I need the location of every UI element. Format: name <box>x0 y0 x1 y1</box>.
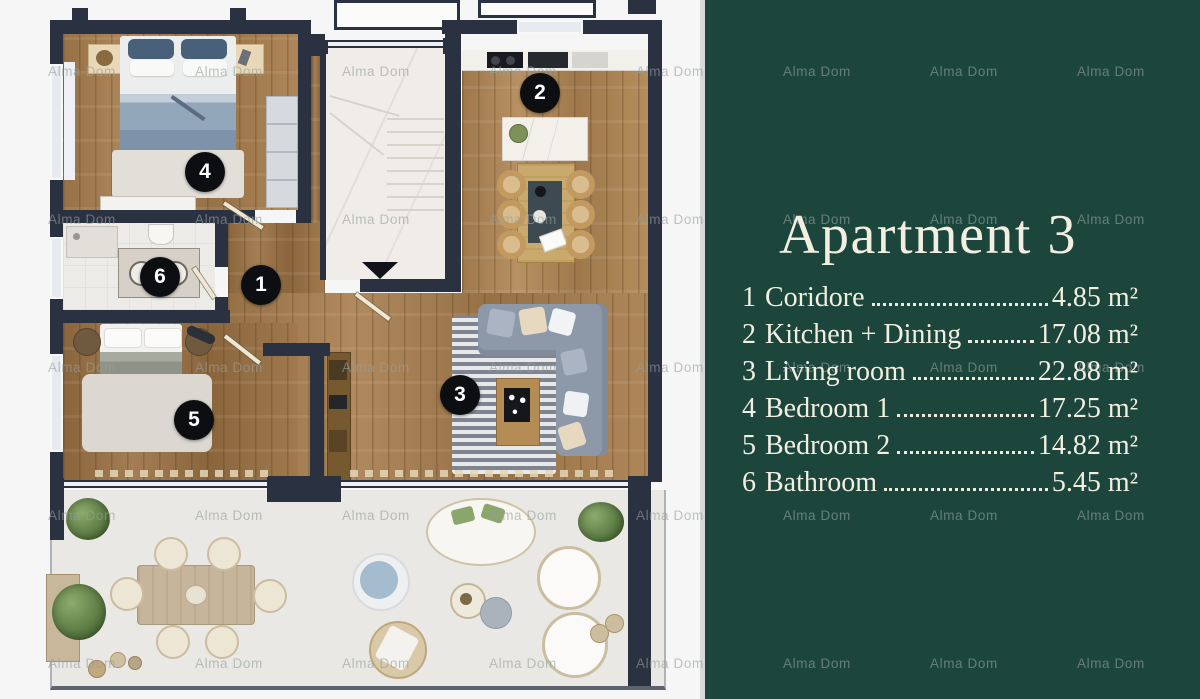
terrace-table-centerpiece <box>185 585 207 605</box>
dining-table-plate <box>533 210 546 223</box>
wall-bottom-left-corner <box>50 478 64 540</box>
dining-chair <box>566 230 595 259</box>
terrace-plant-left <box>52 584 106 640</box>
dining-chair <box>497 230 526 259</box>
wall-bedroom1-bottom <box>50 210 255 223</box>
screenshot-root: 1 2 3 4 5 6 Apartment 3 1 Coridore 4.85 … <box>0 0 1200 699</box>
terrace-pot <box>110 652 126 668</box>
bathroom-window <box>50 237 63 299</box>
sofa-cushion <box>518 306 548 336</box>
room-area: 5.45 m² <box>1052 464 1138 501</box>
terrace-lounge-chair <box>537 546 601 610</box>
wall-bedroom2-top <box>50 310 230 323</box>
terrace-plant-top-right <box>578 502 624 542</box>
room-number: 5 <box>742 427 756 464</box>
upper-floor-ledge-kitchen <box>478 0 596 18</box>
terrace-glass-wall <box>63 480 630 488</box>
sofa-cushion <box>562 390 589 417</box>
dining-chair <box>566 170 595 199</box>
wall-stairwell-right <box>445 34 461 292</box>
corridor-closet-item <box>329 360 347 380</box>
wall-stairwell-bottom <box>360 279 461 292</box>
wall-stairwell-left <box>320 44 326 280</box>
room-row: 3 Living room 22.88 m² <box>742 353 1138 390</box>
room-area: 4.85 m² <box>1052 279 1138 316</box>
bedroom2-window <box>50 354 63 452</box>
terrace-chair <box>156 625 190 659</box>
room-row: 4 Bedroom 1 17.25 m² <box>742 390 1138 427</box>
terrace-chair <box>253 579 287 613</box>
room-badge-kitchen: 2 <box>520 73 560 113</box>
kitchen-window <box>517 20 583 34</box>
terrace-chair <box>207 537 241 571</box>
room-label: Kitchen + Dining <box>765 316 961 353</box>
bedroom1-pillow-blue <box>128 39 174 59</box>
bathroom-shower-drain <box>73 233 80 240</box>
corridor-closet-item <box>329 395 347 409</box>
room-label: Living room <box>765 353 906 390</box>
room-area: 17.25 m² <box>1038 390 1138 427</box>
terrace-pot <box>88 660 106 678</box>
wall-right-exterior <box>648 20 662 482</box>
bedroom1-curtain <box>64 62 75 180</box>
kitchen-sink-area <box>572 52 608 68</box>
bedroom1-pillow-blue <box>181 39 227 59</box>
terrace-plant-top-left <box>66 498 110 540</box>
terrace-chair <box>154 537 188 571</box>
kitchen-burner <box>506 56 515 65</box>
bathroom-shower <box>66 226 118 258</box>
bedroom1-nightstand-plant <box>96 50 113 66</box>
wall-bedroom1-right <box>298 20 311 223</box>
wall-stub <box>628 0 656 14</box>
terrace-pouf-grey <box>480 597 512 629</box>
room-list: 1 Coridore 4.85 m² 2 Kitchen + Dining 17… <box>742 279 1138 501</box>
terrace-chair <box>110 577 144 611</box>
curtain-living <box>350 470 615 477</box>
bedroom2-nightstand <box>73 328 101 356</box>
dining-table-plate <box>535 186 546 197</box>
room-row: 2 Kitchen + Dining 17.08 m² <box>742 316 1138 353</box>
sofa-cushion <box>560 348 588 376</box>
stairwell-top-glass <box>322 40 446 48</box>
wall-bottom-right-corner <box>628 476 651 686</box>
room-number: 6 <box>742 464 756 501</box>
bedroom1-sideboard <box>100 196 196 211</box>
room-label: Bedroom 2 <box>765 427 890 464</box>
dotted-leader <box>913 377 1034 380</box>
room-badge-living: 3 <box>440 375 480 415</box>
bedroom1-wardrobe <box>266 96 298 208</box>
room-label: Coridore <box>765 279 865 316</box>
apartment-title: Apartment 3 <box>779 203 1077 267</box>
terrace-chair <box>205 625 239 659</box>
room-badge-bedroom2: 5 <box>174 400 214 440</box>
bedroom1-pillow-white <box>183 60 227 76</box>
room-row: 6 Bathroom 5.45 m² <box>742 464 1138 501</box>
dining-chair <box>566 200 595 229</box>
terrace-side-table-plant <box>460 593 472 605</box>
wall-bathroom-right-upper <box>215 223 228 267</box>
bedroom2-pillow <box>104 328 142 348</box>
bedroom1-pillow-white <box>130 60 174 76</box>
room-label: Bathroom <box>765 464 877 501</box>
dining-chair <box>497 200 526 229</box>
terrace-pouf-small <box>605 614 624 633</box>
terrace-lounge-chair <box>542 612 608 678</box>
dotted-leader <box>884 488 1048 491</box>
stair-direction-arrow <box>362 262 398 279</box>
kitchen-island-plant <box>509 124 528 143</box>
dining-chair <box>497 170 526 199</box>
stair-treads <box>387 118 444 220</box>
room-number: 3 <box>742 353 756 390</box>
room-label: Bedroom 1 <box>765 390 890 427</box>
room-badge-bathroom: 6 <box>140 257 180 297</box>
wall-bedroom1-bottom-stub <box>296 210 311 223</box>
kitchen-burner <box>491 56 500 65</box>
room-area: 17.08 m² <box>1038 316 1138 353</box>
bathroom-toilet <box>148 224 174 245</box>
bedroom1-window <box>50 64 63 180</box>
room-number: 4 <box>742 390 756 427</box>
corridor-closet-item <box>329 430 347 452</box>
coffee-table-tray <box>504 388 530 422</box>
dotted-leader <box>968 340 1034 343</box>
wall-top-bedroom1 <box>50 20 311 34</box>
room-area: 14.82 m² <box>1038 427 1138 464</box>
wall-bottom-center-block <box>267 476 341 502</box>
dotted-leader <box>897 414 1034 417</box>
bedroom2-pillow <box>144 328 182 348</box>
kitchen-appliance <box>528 52 568 68</box>
room-row: 5 Bedroom 2 14.82 m² <box>742 427 1138 464</box>
terrace-pouf-blue-cushion <box>360 561 398 599</box>
room-number: 1 <box>742 279 756 316</box>
dotted-leader <box>897 451 1034 454</box>
wall-bedroom2-right <box>310 343 324 486</box>
room-number: 2 <box>742 316 756 353</box>
room-row: 1 Coridore 4.85 m² <box>742 279 1138 316</box>
room-badge-bedroom1: 4 <box>185 152 225 192</box>
terrace-pot <box>128 656 142 670</box>
room-badge-corridor: 1 <box>241 265 281 305</box>
sofa-cushion <box>486 308 516 338</box>
terrace-daybed <box>426 498 536 566</box>
curtain-bedroom2 <box>95 470 270 477</box>
room-area: 22.88 m² <box>1038 353 1138 390</box>
dotted-leader <box>872 303 1048 306</box>
